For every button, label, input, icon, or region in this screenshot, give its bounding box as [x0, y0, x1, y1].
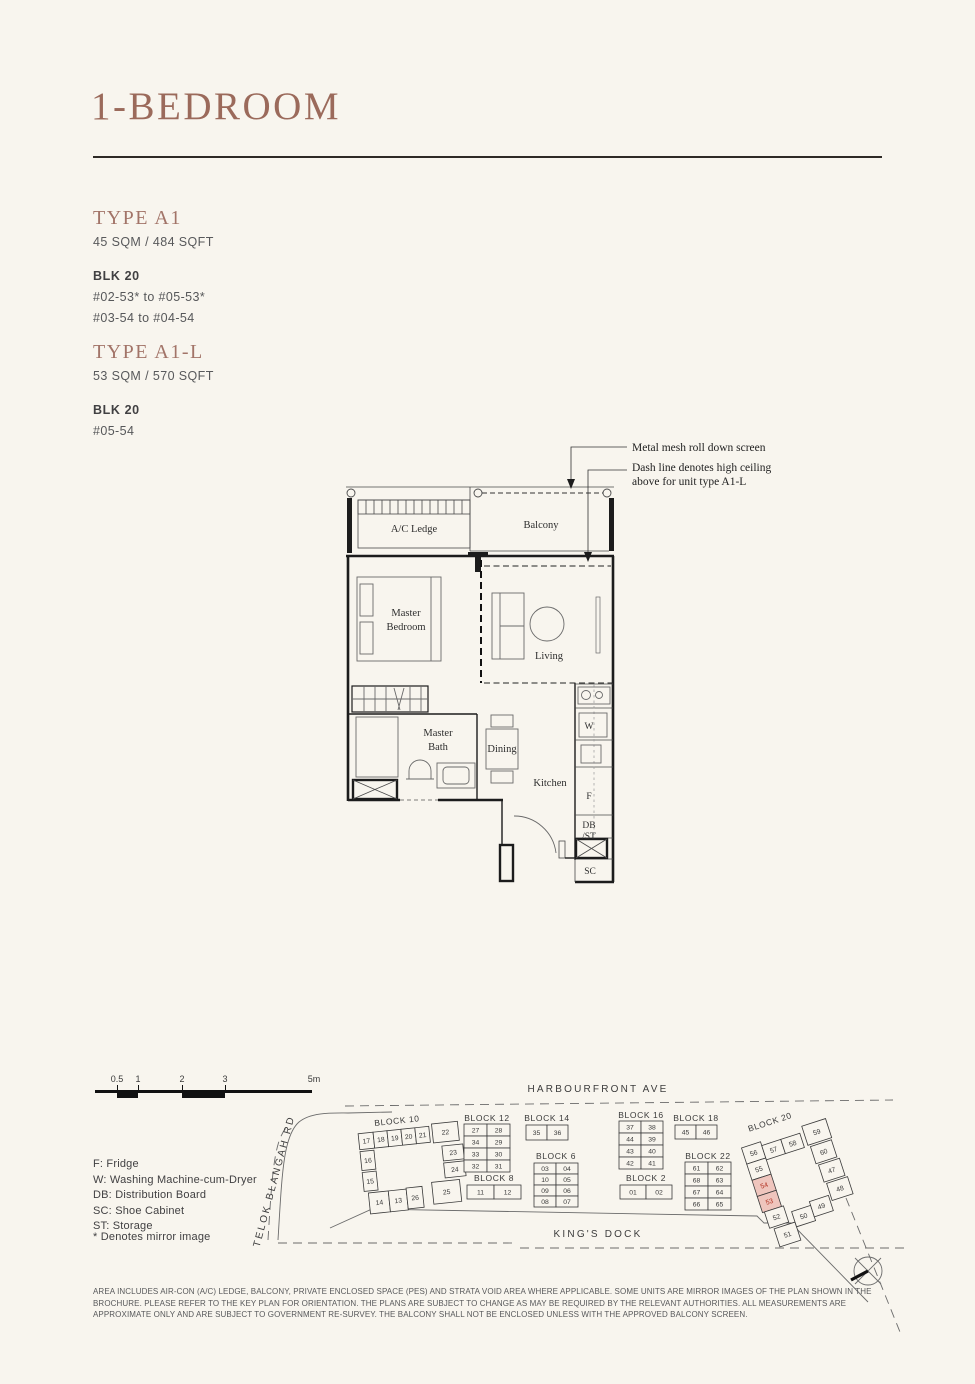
- unit-number: 28: [495, 1127, 503, 1134]
- legend-item-sc: SC: Shoe Cabinet: [93, 1204, 257, 1220]
- fridge-label: F: [586, 792, 591, 802]
- unit-number: 01: [629, 1189, 637, 1196]
- master-bedroom-label-1: Master: [391, 608, 421, 619]
- unit-number: 16: [364, 1157, 372, 1165]
- keyplan-block: 1112BLOCK 8: [467, 1173, 521, 1199]
- title-divider: [93, 156, 882, 158]
- keyplan-blocks: 1718192021221615232414132625BLOCK 102728…: [357, 1100, 862, 1249]
- unit-number: 40: [648, 1148, 656, 1155]
- unit-number: 64: [716, 1189, 724, 1196]
- unit-number: 39: [648, 1136, 656, 1143]
- block-label: BLOCK 12: [464, 1113, 509, 1123]
- keyplan-block: 6162686367646665BLOCK 22: [685, 1151, 731, 1210]
- unit-number: 45: [682, 1129, 690, 1136]
- unit-number: 24: [451, 1166, 459, 1174]
- block-label: BLOCK 16: [618, 1110, 663, 1120]
- type-a1l-area: 53 SQM / 570 SQFT: [93, 369, 214, 383]
- scale-label-3: 3: [222, 1074, 227, 1084]
- scale-label-1: 1: [135, 1074, 140, 1084]
- unit-number: 38: [648, 1124, 656, 1131]
- washer-label: W: [585, 722, 594, 732]
- type-a1-heading: TYPE A1: [93, 207, 214, 230]
- dashed-high-ceiling-lines: [481, 560, 613, 683]
- scale-label-05: 0.5: [111, 1074, 124, 1084]
- unit-number: 14: [375, 1199, 383, 1207]
- scale-label-2: 2: [179, 1074, 184, 1084]
- db-label: DB: [582, 821, 595, 831]
- floorplan-labels: A/C Ledge Balcony Master Bedroom Living …: [386, 442, 771, 877]
- unit-number: 11: [477, 1189, 484, 1196]
- block-label: BLOCK 8: [474, 1173, 514, 1183]
- dining-label: Dining: [487, 744, 517, 755]
- master-bath-label-1: Master: [423, 728, 453, 739]
- unit-number: 44: [626, 1136, 634, 1143]
- type-a1l-heading: TYPE A1-L: [93, 341, 214, 364]
- legend: F: Fridge W: Washing Machine-cum-Dryer D…: [93, 1157, 257, 1235]
- unit-number: 42: [626, 1160, 634, 1167]
- floorplan-outer-walls: [346, 487, 614, 882]
- keyplan-block: 4546BLOCK 18: [673, 1113, 718, 1139]
- unit-number: 07: [563, 1199, 571, 1206]
- unit-number: 33: [472, 1151, 480, 1158]
- unit-number: 08: [541, 1199, 549, 1206]
- scale-bar-segment: [182, 1093, 225, 1098]
- unit-number: 09: [541, 1188, 549, 1195]
- unit-number: 30: [495, 1151, 503, 1158]
- keyplan-block: 1718192021221615232414132625BLOCK 10: [357, 1109, 469, 1214]
- unit-number: 29: [495, 1139, 503, 1146]
- unit-number: 32: [472, 1163, 480, 1170]
- unit-type-info: TYPE A1 45 SQM / 484 SQFT BLK 20 #02-53*…: [93, 207, 214, 438]
- legend-item-washer: W: Washing Machine-cum-Dryer: [93, 1173, 257, 1189]
- unit-number: 41: [648, 1160, 656, 1167]
- unit-number: 06: [563, 1188, 571, 1195]
- block-label: BLOCK 14: [524, 1113, 569, 1123]
- unit-number: 46: [703, 1129, 711, 1136]
- type-a1l-units-1: #05-54: [93, 424, 214, 438]
- block-label: BLOCK 6: [536, 1151, 576, 1161]
- block-label: BLOCK 20: [747, 1110, 793, 1134]
- balcony-label: Balcony: [524, 520, 560, 531]
- mirror-image-note: * Denotes mirror image: [93, 1231, 211, 1243]
- type-a1-block: BLK 20: [93, 269, 214, 283]
- legend-item-db: DB: Distribution Board: [93, 1188, 257, 1204]
- master-bath-label-2: Bath: [428, 742, 449, 753]
- unit-number: 17: [362, 1138, 370, 1146]
- unit-number: 35: [533, 1130, 541, 1137]
- unit-number: 23: [449, 1149, 457, 1157]
- unit-number: 37: [626, 1124, 634, 1131]
- floorplan-interior-walls: [348, 683, 613, 882]
- page-title: 1-BEDROOM: [91, 84, 341, 129]
- harbourfront-ave-label: HARBOURFRONT AVE: [528, 1084, 669, 1095]
- unit-number: 62: [716, 1165, 724, 1172]
- unit-number: 22: [441, 1129, 449, 1137]
- mesh-annotation: Metal mesh roll down screen: [632, 442, 766, 454]
- block-label: BLOCK 22: [685, 1151, 730, 1161]
- keyplan-block: 3536BLOCK 14: [524, 1113, 569, 1140]
- legend-item-fridge: F: Fridge: [93, 1157, 257, 1173]
- block-label: BLOCK 18: [673, 1113, 718, 1123]
- sc-label: SC: [584, 867, 596, 877]
- unit-number: 43: [626, 1148, 634, 1155]
- type-a1-area: 45 SQM / 484 SQFT: [93, 235, 214, 249]
- keyplan-block: 2728342933303231BLOCK 12: [464, 1113, 510, 1172]
- unit-number: 67: [693, 1189, 701, 1196]
- unit-number: 18: [377, 1136, 385, 1144]
- keyplan-block: 5655545352515758596047485049BLOCK 20: [735, 1100, 862, 1249]
- type-a1-units-2: #03-54 to #04-54: [93, 311, 214, 325]
- unit-number: 19: [391, 1135, 399, 1143]
- unit-number: 02: [655, 1189, 663, 1196]
- unit-number: 12: [504, 1189, 512, 1196]
- unit-number: 25: [443, 1189, 451, 1197]
- unit-number: 31: [495, 1163, 503, 1170]
- living-label: Living: [535, 651, 564, 662]
- unit-number: 10: [541, 1177, 549, 1184]
- floor-plan: A/C Ledge Balcony Master Bedroom Living …: [330, 435, 890, 905]
- type-a1-units-1: #02-53* to #05-53*: [93, 290, 214, 304]
- st-label: /ST: [582, 832, 596, 842]
- telok-blangah-rd-label: TELOK BLANGAH RD: [252, 1114, 298, 1248]
- keyplan-block: 0102BLOCK 2: [620, 1173, 672, 1199]
- unit-number: 63: [716, 1177, 724, 1184]
- scale-bar-segment: [117, 1093, 138, 1098]
- keyplan-block: 3738443943404241BLOCK 16: [618, 1110, 663, 1169]
- compass-icon: [851, 1257, 882, 1285]
- keyplan-block: 0304100509060807BLOCK 6: [534, 1151, 578, 1207]
- unit-number: 27: [472, 1127, 480, 1134]
- unit-number: 66: [693, 1201, 701, 1208]
- disclaimer-text: AREA INCLUDES AIR-CON (A/C) LEDGE, BALCO…: [93, 1286, 887, 1321]
- unit-number: 21: [419, 1132, 427, 1140]
- unit-number: 15: [366, 1178, 374, 1186]
- block-label: BLOCK 10: [374, 1113, 420, 1128]
- unit-number: 04: [563, 1166, 571, 1173]
- annotation-leaders: [567, 447, 627, 562]
- unit-number: 36: [554, 1130, 562, 1137]
- unit-number: 68: [693, 1177, 701, 1184]
- unit-number: 05: [563, 1177, 571, 1184]
- type-a1l-block: BLK 20: [93, 403, 214, 417]
- unit-number: 65: [716, 1201, 724, 1208]
- unit-number: 61: [693, 1165, 701, 1172]
- unit-number: 13: [394, 1197, 402, 1205]
- kitchen-label: Kitchen: [533, 778, 567, 789]
- block-label: BLOCK 2: [626, 1173, 666, 1183]
- ac-ledge-label: A/C Ledge: [391, 524, 438, 535]
- unit-number: 34: [472, 1139, 480, 1146]
- unit-number: 20: [405, 1133, 413, 1141]
- dash-annotation-2: above for unit type A1-L: [632, 476, 746, 488]
- dash-annotation-1: Dash line denotes high ceiling: [632, 462, 771, 474]
- brochure-page: 1-BEDROOM TYPE A1 45 SQM / 484 SQFT BLK …: [0, 0, 975, 1384]
- master-bedroom-label-2: Bedroom: [386, 622, 425, 633]
- unit-number: 26: [411, 1195, 419, 1203]
- unit-number: 03: [541, 1166, 549, 1173]
- kings-dock-label: KING'S DOCK: [554, 1229, 643, 1240]
